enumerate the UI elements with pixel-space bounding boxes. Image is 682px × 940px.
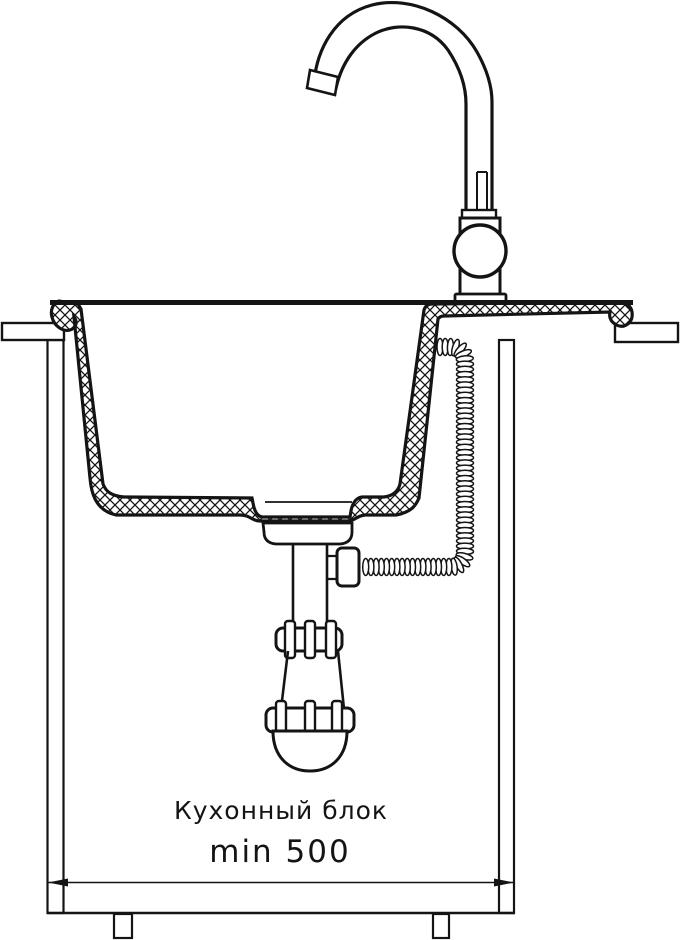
drain-assembly [263,523,359,771]
cabinet-label: Кухонный блок [174,796,388,825]
cabinet-right-wall [499,340,514,913]
trap-bolt [285,621,295,658]
drain-outlet-nut [337,548,359,586]
drain-tailpipe [293,544,327,629]
faucet-lever-joint [454,225,506,277]
sink-basin-section-band [51,301,632,521]
sink-section [51,301,632,521]
sink-installation-diagram: Кухонный блок min 500 [0,0,682,940]
cabinet-leg-left [114,914,132,938]
hose-rib [363,559,369,576]
cabinet-leg-right [433,914,449,938]
faucet [307,3,506,303]
drain-flange [263,523,352,544]
width-dimension [48,879,514,887]
faucet-spout [314,3,492,214]
cabinet-left-wall [48,340,64,913]
technical-drawing-canvas: Кухонный блок min 500 [0,0,682,940]
trap-bolt [326,621,336,658]
trap-cup [273,731,347,771]
trap-bolt [305,621,315,658]
min-width-label: min 500 [209,834,350,870]
